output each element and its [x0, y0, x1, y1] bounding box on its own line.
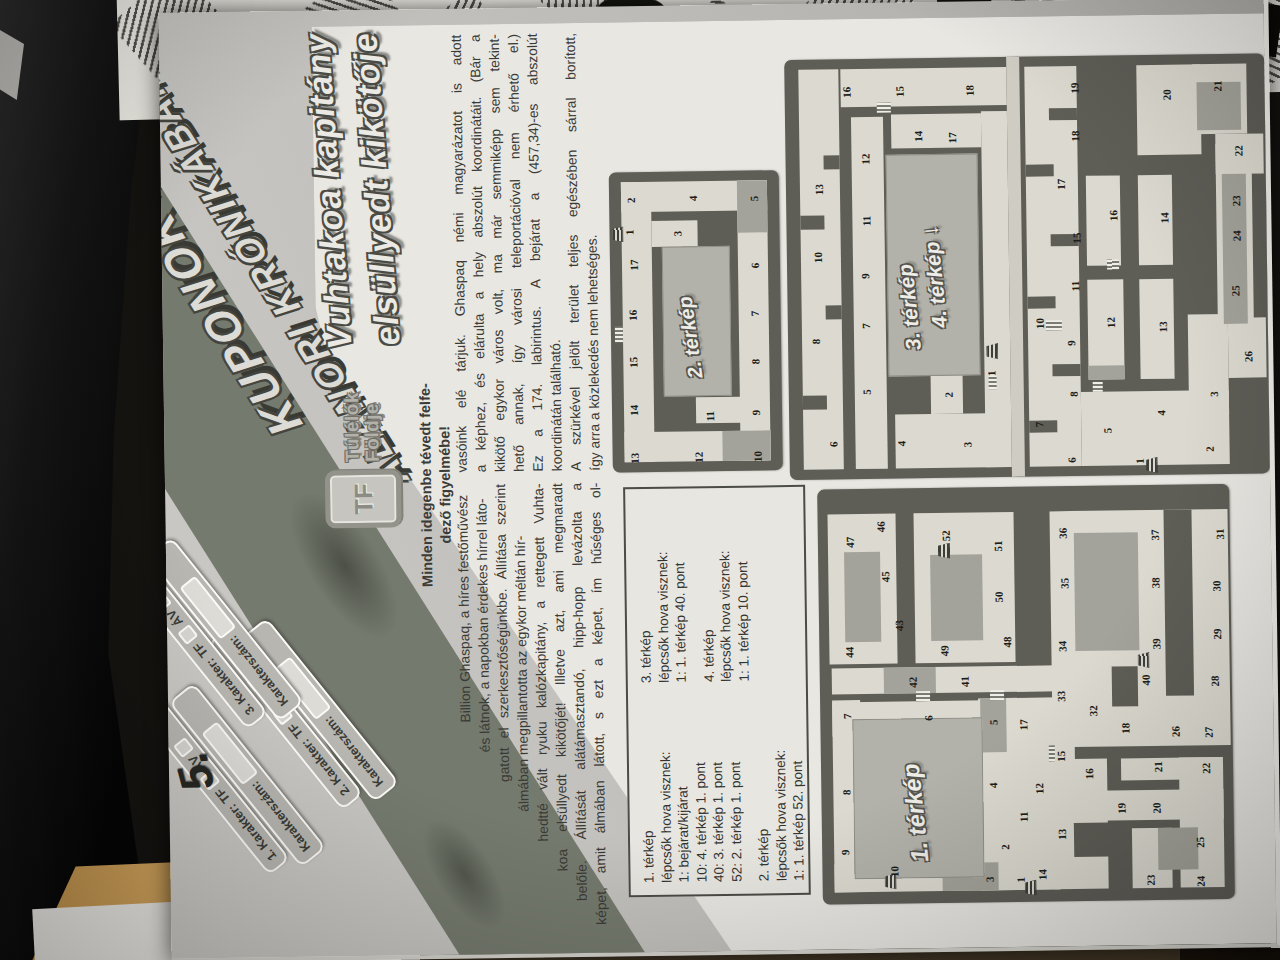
maze-corridor [1228, 317, 1267, 378]
handwritten-mark: 5. [162, 750, 226, 792]
map-point-number: 16 [1083, 768, 1095, 779]
map-point-number: 11 [704, 411, 716, 422]
tf-monogram-icon: TF [325, 469, 402, 528]
map-label-plate: 3. térkép4. térkép ↓ [885, 153, 980, 376]
map-point-number: 4 [687, 196, 699, 202]
maze-wall [826, 305, 842, 319]
map-point-number: 11 [1069, 281, 1081, 292]
map-point-number: 51 [992, 541, 1004, 552]
map-point-number: 43 [893, 620, 905, 631]
map-point-number: 48 [1001, 636, 1013, 647]
map-point-number: 6 [827, 442, 839, 448]
photo-canvas: KUPONOK AZ ALANORI KRÓNIKÁBAN 1. Karakte… [0, 0, 1280, 960]
map-point-number: 52 [940, 530, 952, 541]
notice-line1: Minden idegenbe tévedt felfe- [415, 345, 438, 625]
map-point-number: 14 [1158, 212, 1170, 223]
map-point-number: 42 [907, 677, 919, 688]
map-point-number: 25 [1229, 285, 1241, 296]
map-point-number: 5 [1101, 428, 1113, 434]
legend-right-column: 3. térképlépcsők hova visznek:1: 1. térk… [635, 499, 796, 683]
map-point-number: 20 [1161, 89, 1173, 100]
legend-entry: 3. térképlépcsők hova visznek:1: 1. térk… [635, 500, 690, 683]
map-point-number: 36 [1057, 528, 1069, 539]
tf-logo-name: Túlélők Földje [342, 392, 383, 463]
map-point-number: 2 [943, 392, 955, 398]
map-point-number: 18 [964, 85, 976, 96]
map-plate-title: 4. térkép ↓ [918, 224, 952, 329]
map-point-number: 22 [1232, 145, 1244, 156]
map-point-number: 9 [1065, 340, 1077, 346]
coupon-tf-label: TF [285, 721, 305, 742]
map-point-number: 46 [875, 521, 887, 532]
mud-area [1158, 827, 1199, 870]
map-point-number: 15 [894, 86, 906, 97]
body-column-2: vasóink elé tárjuk. Ghaspaq némi magyará… [447, 33, 605, 473]
maze-wall [1027, 296, 1055, 308]
map-point-number: 8 [810, 339, 822, 345]
map-point-number: 13 [1157, 321, 1169, 332]
legend-entry: 2. térképlépcsők hova visznek:1: 1. térk… [753, 699, 808, 882]
map-plate-title: 2. térkép [674, 295, 708, 380]
door-mark [989, 375, 997, 389]
map-point-number: 50 [993, 592, 1005, 603]
door-mark [1107, 259, 1119, 269]
map-point-number: 7 [860, 323, 872, 329]
map-point-number: 1 [985, 370, 997, 376]
tf-logo-name-line2: Földje [362, 392, 383, 462]
map-point-number: 24 [1231, 230, 1243, 241]
maze-corridor [621, 182, 655, 462]
map-point-number: 9 [750, 410, 762, 416]
map-point-number: 16 [841, 87, 853, 98]
map-point-number: 20 [1151, 802, 1163, 813]
map-label-plate: 2. térkép [662, 246, 732, 397]
map-point-number: 10 [752, 451, 764, 462]
map-point-number: 11 [860, 216, 872, 227]
map-point-number: 12 [1105, 317, 1117, 328]
map-point-number: 6 [922, 715, 934, 721]
maze-wall [1074, 822, 1126, 857]
map-point-number: 11 [1018, 812, 1030, 823]
map-point-number: 21 [1152, 761, 1164, 772]
mud-area [1074, 532, 1140, 651]
map-point-number: 15 [627, 357, 639, 368]
legend-row: 1: 1. térkép 40. pont [670, 500, 690, 682]
map-point-number: 23 [1230, 195, 1242, 206]
maze-wall [1112, 666, 1139, 706]
map-3-and-4: 3. térkép4. térkép ↓12345678910111213141… [784, 53, 1270, 480]
map-point-number: 8 [840, 789, 852, 795]
map-point-number: 14 [912, 131, 924, 142]
map-point-number: 1 [623, 229, 635, 235]
legend-entry: 4. térképlépcsők hova visznek:1: 1. térk… [698, 500, 753, 683]
map-point-number: 4 [895, 441, 907, 447]
map-point-number: 26 [1242, 351, 1254, 362]
map-point-number: 26 [1169, 726, 1181, 737]
map-point-number: 39 [1150, 638, 1162, 649]
map-2: 2. térkép1234567891011121314151617 [609, 170, 783, 472]
map-point-number: 2 [999, 844, 1011, 850]
map-point-number: 27 [1202, 727, 1214, 738]
map-point-number: 3 [961, 442, 973, 448]
tf-logo-name-line1: Túlélők [342, 392, 363, 462]
mud-area [930, 554, 983, 641]
map-1: 1. térkép1234567891011121314151617181920… [817, 484, 1235, 905]
maze-wall [1026, 164, 1054, 176]
map-point-number: 1 [1015, 877, 1027, 883]
map-point-number: 8 [749, 359, 761, 365]
maze-wall [800, 216, 824, 230]
map-point-number: 17 [1017, 719, 1029, 730]
map-point-number: 10 [1034, 318, 1046, 329]
map-point-number: 16 [627, 310, 639, 321]
map-point-number: 49 [938, 645, 950, 656]
map-point-number: 8 [1068, 391, 1080, 397]
map-point-number: 35 [1058, 578, 1070, 589]
map-point-number: 24 [1195, 876, 1207, 887]
map-point-number: 18 [1069, 130, 1081, 141]
map-point-number: 30 [1210, 580, 1222, 591]
coupon-tf-label: TF [212, 786, 232, 807]
map-point-number: 32 [1087, 705, 1099, 716]
stairs-entrance-icon [611, 226, 623, 242]
map-point-number: 47 [844, 537, 856, 548]
map-point-number: 9 [859, 273, 871, 279]
map-point-number: 16 [1107, 210, 1119, 221]
map-point-number: 7 [749, 311, 761, 317]
door-mark [1046, 320, 1062, 330]
mud-area [844, 552, 881, 642]
map-point-number: 23 [1145, 874, 1157, 885]
map-point-number: 29 [1211, 628, 1223, 639]
maze-corridor [1024, 66, 1082, 467]
coupon-tf-label: TF [190, 640, 210, 661]
map-point-number: 12 [1033, 783, 1045, 794]
maze-corridor [840, 67, 1007, 107]
maze-corridor [832, 665, 1058, 694]
map-point-number: 15 [1071, 232, 1083, 243]
map-point-number: 40 [1140, 674, 1152, 685]
door-mark [990, 690, 1004, 700]
maze-wall [823, 155, 839, 169]
map-point-number: 4 [1155, 410, 1167, 416]
door-mark [615, 326, 623, 342]
map-point-number: 2 [1204, 446, 1216, 452]
map-point-number: 31 [1214, 528, 1226, 539]
map-point-number: 45 [879, 571, 891, 582]
map-point-number: 12 [693, 452, 705, 463]
map-point-number: 14 [1036, 869, 1048, 880]
map-point-number: 21 [1211, 80, 1223, 91]
map-point-number: 44 [843, 647, 855, 658]
map-point-number: 5 [861, 389, 873, 395]
map-point-number: 38 [1149, 577, 1161, 588]
map-point-number: 6 [749, 263, 761, 269]
legend-row: 1: 1. térkép 10. pont [733, 500, 753, 682]
map-point-number: 18 [1119, 723, 1131, 734]
map-point-number: 5 [748, 196, 760, 202]
map-point-number: 14 [628, 405, 640, 416]
maze-corridor [696, 397, 742, 424]
tf-checkbox [177, 624, 198, 645]
map-point-number: 3 [984, 876, 996, 882]
map-plate-title: 1. térkép [897, 762, 935, 863]
map-point-number: 13 [629, 453, 641, 464]
mud-area [1088, 365, 1124, 380]
map-point-number: 17 [1055, 179, 1067, 190]
map-point-number: 5 [987, 719, 999, 725]
coupon-av-label: ÁV [164, 607, 186, 629]
map-point-number: 15 [1055, 751, 1067, 762]
map-point-number: 6 [1066, 457, 1078, 463]
legend-entry: 1. térképlépcsők hova visznek:1: bejárat… [638, 700, 746, 883]
maze-wall [1052, 364, 1080, 376]
map-point-number: 7 [841, 713, 853, 719]
map-point-number: 19 [1116, 803, 1128, 814]
map-point-number: 3 [1208, 391, 1220, 397]
body-column-1: Billion Ghaspaq, a híres festőművészés l… [453, 483, 611, 927]
door-mark [916, 691, 930, 701]
maze-corridor [851, 117, 888, 469]
map-point-number: 22 [1200, 763, 1212, 774]
map-point-number: 41 [959, 676, 971, 687]
legend-row: 52: 2. térkép 1. pont [726, 700, 746, 882]
door-mark [877, 103, 891, 113]
map-plate-title: 3. térkép [893, 263, 926, 351]
maze-wall [803, 396, 827, 410]
legend-box: 1. térképlépcsők hova visznek:1: bejárat… [623, 485, 811, 898]
mud-area [980, 698, 1007, 752]
map-point-number: 2 [625, 197, 637, 203]
map-point-number: 37 [1149, 529, 1161, 540]
map-point-number: 17 [946, 132, 958, 143]
map-point-number: 17 [628, 260, 640, 271]
mud-area [737, 180, 768, 232]
map-point-number: 25 [1194, 837, 1206, 848]
maze-corridor [1188, 314, 1229, 415]
map-point-number: 9 [839, 849, 851, 855]
map-point-number: 13 [1056, 829, 1068, 840]
map-point-number: 3 [672, 231, 684, 237]
legend-left-column: 1. térképlépcsők hova visznek:1: bejárat… [638, 699, 799, 883]
magazine-page: KUPONOK AZ ALANORI KRÓNIKÁBAN 1. Karakte… [158, 0, 1280, 960]
map-point-number: 1 [1134, 458, 1146, 464]
legend-row: 1: 1. térkép 52. pont [788, 699, 808, 881]
map-point-number: 12 [859, 153, 871, 164]
map-label-plate: 1. térkép [852, 717, 984, 879]
tf-logo: TF Túlélők Földje [324, 391, 402, 528]
door-mark [1093, 382, 1103, 392]
map-point-number: 28 [1209, 676, 1221, 687]
maze-wall [1163, 509, 1194, 695]
maze-wall [1049, 108, 1077, 120]
map-point-number: 7 [1033, 422, 1045, 428]
map-point-number: 10 [812, 252, 824, 263]
map-point-number: 19 [1068, 82, 1080, 93]
map-point-number: 34 [1056, 641, 1068, 652]
map-point-number: 33 [1055, 691, 1067, 702]
map-point-number: 10 [888, 866, 900, 877]
maze-corridor [891, 113, 981, 148]
map-point-number: 4 [987, 782, 999, 788]
map-point-number: 13 [813, 184, 825, 195]
